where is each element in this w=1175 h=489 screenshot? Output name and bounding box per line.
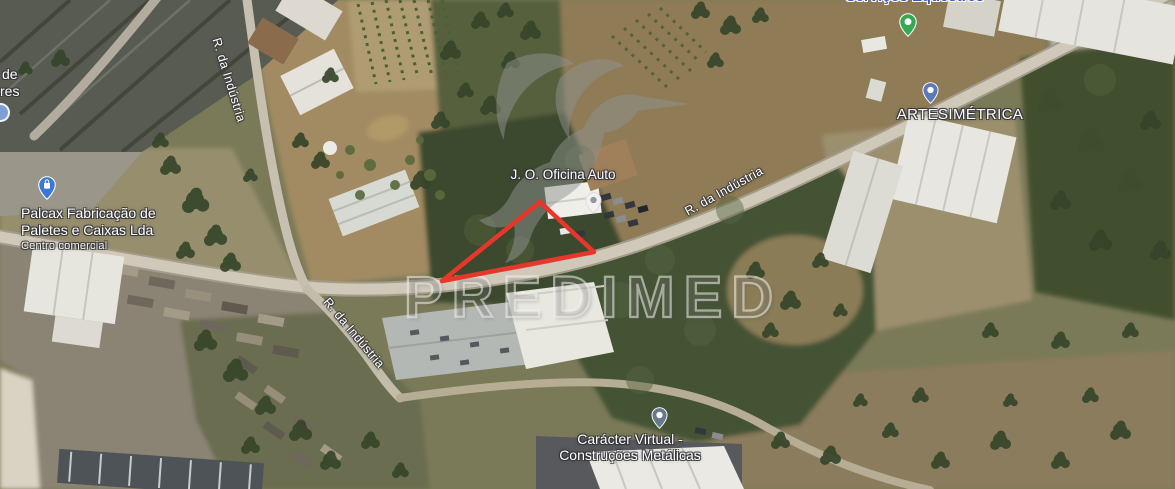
- artesimetrica-place-label[interactable]: ARTESIMÉTRICA: [880, 107, 1040, 124]
- caracter-label-line2: Construções Metálicas: [520, 448, 740, 464]
- equestres-map-pin[interactable]: [899, 13, 917, 37]
- satellite-map-canvas[interactable]: PREDIMED R. da Indústria R. da Indústria…: [0, 0, 1175, 489]
- oficina-map-pin[interactable]: [585, 192, 602, 214]
- oficina-place-label[interactable]: J. O. Oficina Auto: [488, 167, 638, 184]
- palcax-label-line1: Palcax Fabricação de: [21, 205, 156, 222]
- watermark-layer: PREDIMED: [0, 0, 1175, 489]
- artesimetrica-map-pin[interactable]: [922, 82, 939, 104]
- palcax-place-label[interactable]: Palcax Fabricação de Paletes e Caixas Ld…: [21, 205, 156, 255]
- caracter-virtual-place-label[interactable]: Carácter Virtual - Construções Metálicas: [520, 432, 740, 463]
- pin-dot-icon: [905, 18, 912, 25]
- hummingbird-logo-watermark: [0, 0, 1175, 489]
- equestres-place-label-clipped[interactable]: Serviços Equestres: [830, 0, 1000, 5]
- pin-dot-icon: [927, 87, 933, 93]
- pin-dot-icon: [656, 412, 662, 418]
- caracter-label-line1: Carácter Virtual -: [520, 432, 740, 448]
- edge-partial-label-line1: de: [2, 66, 18, 82]
- caracter-virtual-map-pin[interactable]: [651, 407, 668, 429]
- palcax-map-pin[interactable]: [38, 176, 56, 200]
- palcax-label-category: Centro comercial: [21, 238, 156, 255]
- palcax-label-line2: Paletes e Caixas Lda: [21, 222, 156, 239]
- pin-dot-icon: [590, 197, 596, 203]
- watermark-brand-text: PREDIMED: [404, 264, 782, 331]
- edge-partial-label-line2: res: [0, 83, 19, 99]
